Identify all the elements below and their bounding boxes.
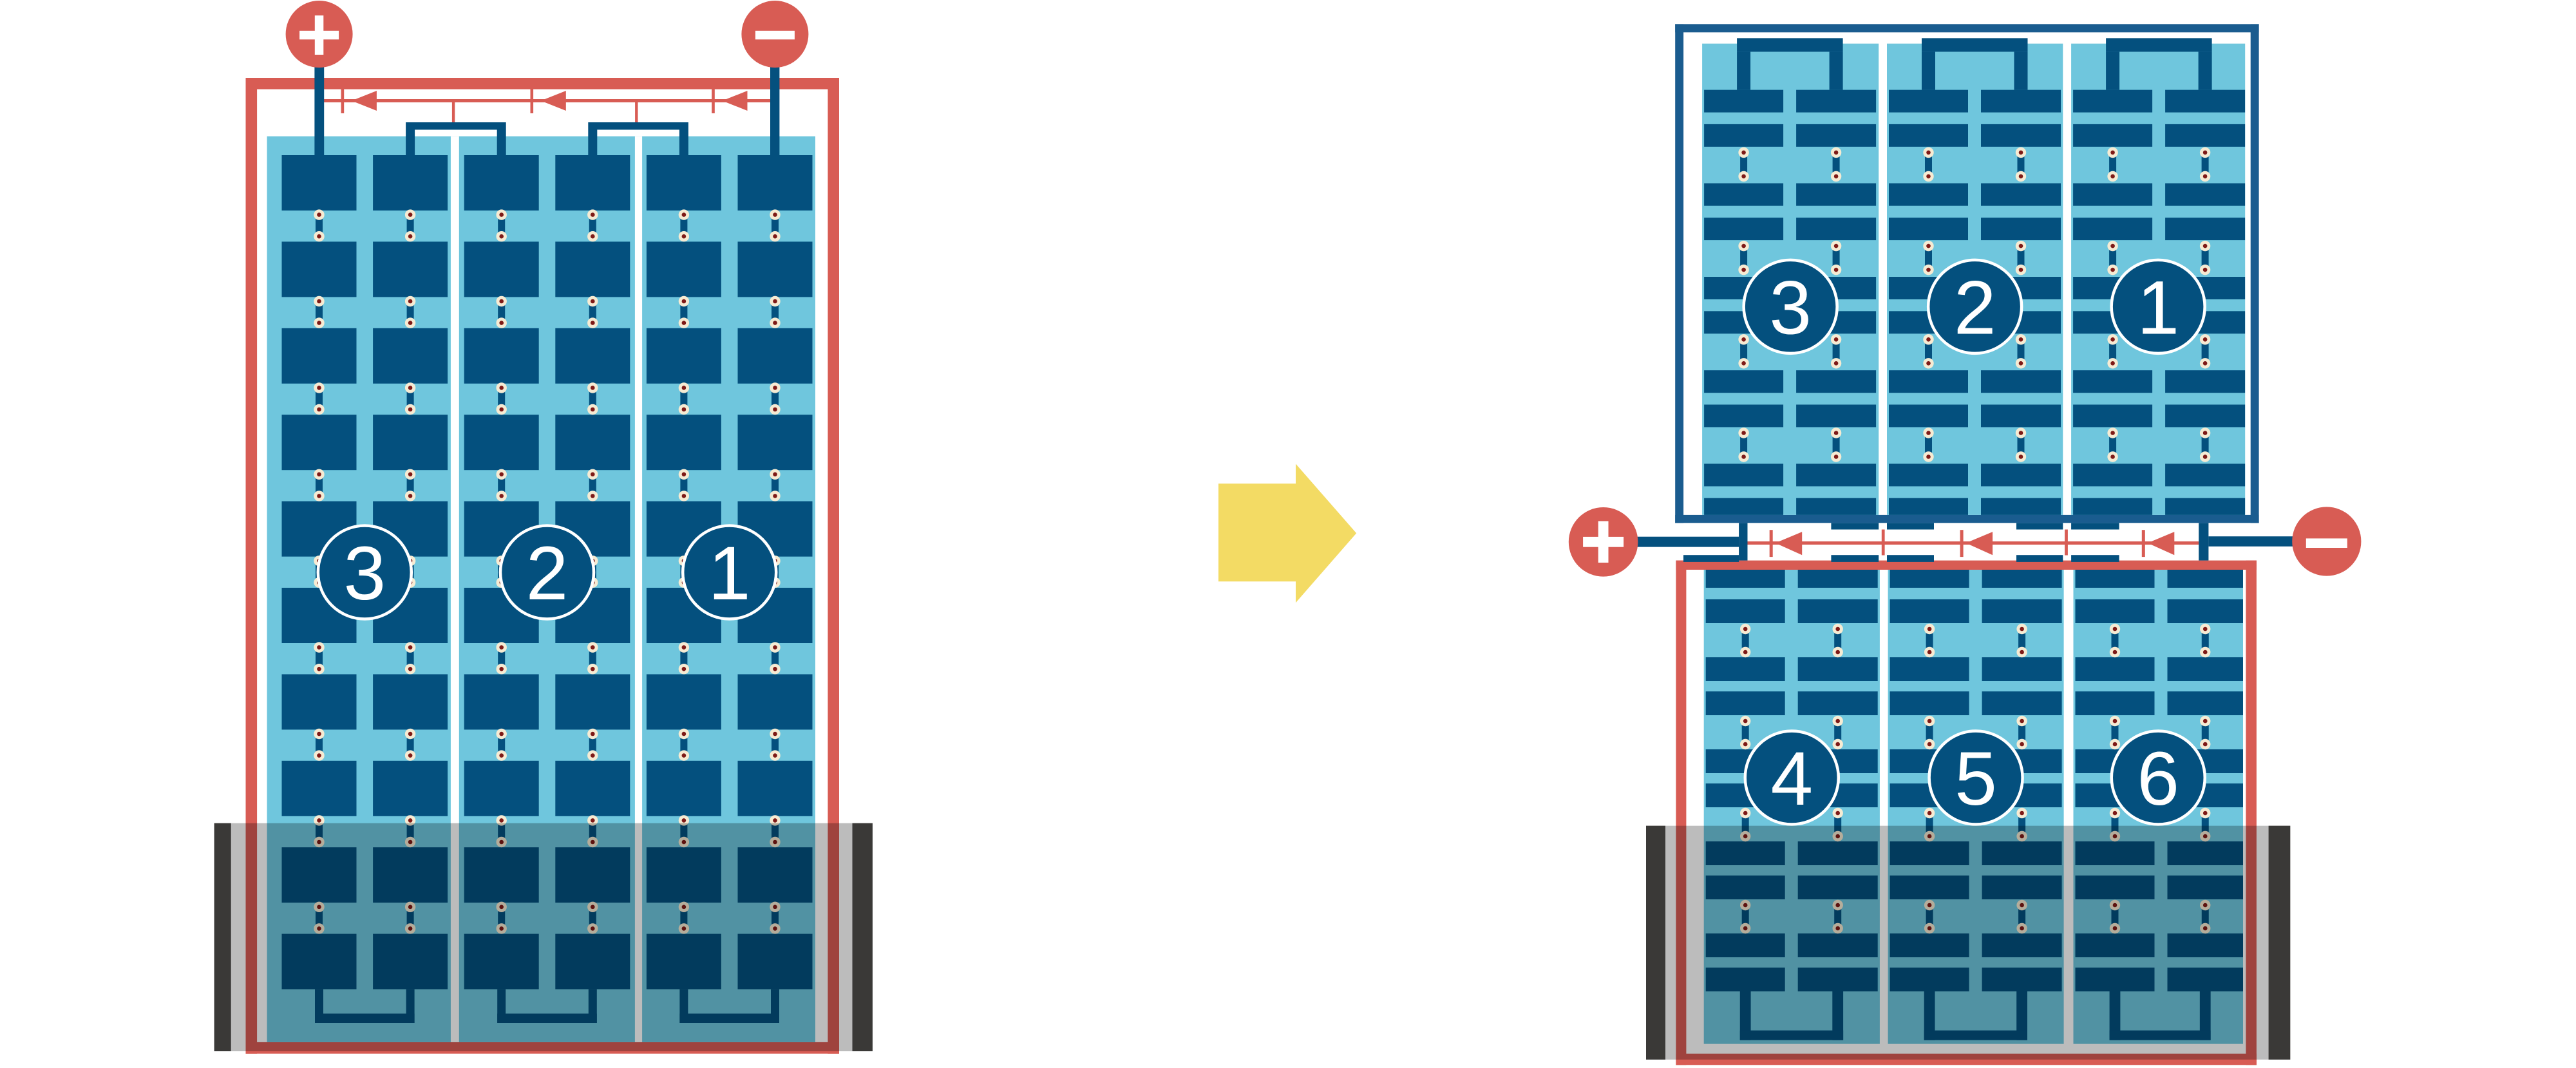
svg-text:2: 2: [1954, 265, 1996, 350]
svg-text:6: 6: [2137, 736, 2179, 821]
svg-text:3: 3: [343, 531, 386, 616]
svg-text:5: 5: [1955, 736, 1997, 821]
svg-text:4: 4: [1770, 736, 1813, 821]
svg-text:1: 1: [708, 531, 751, 616]
svg-text:3: 3: [1769, 265, 1812, 350]
svg-text:2: 2: [526, 531, 569, 616]
svg-text:1: 1: [2137, 265, 2179, 350]
